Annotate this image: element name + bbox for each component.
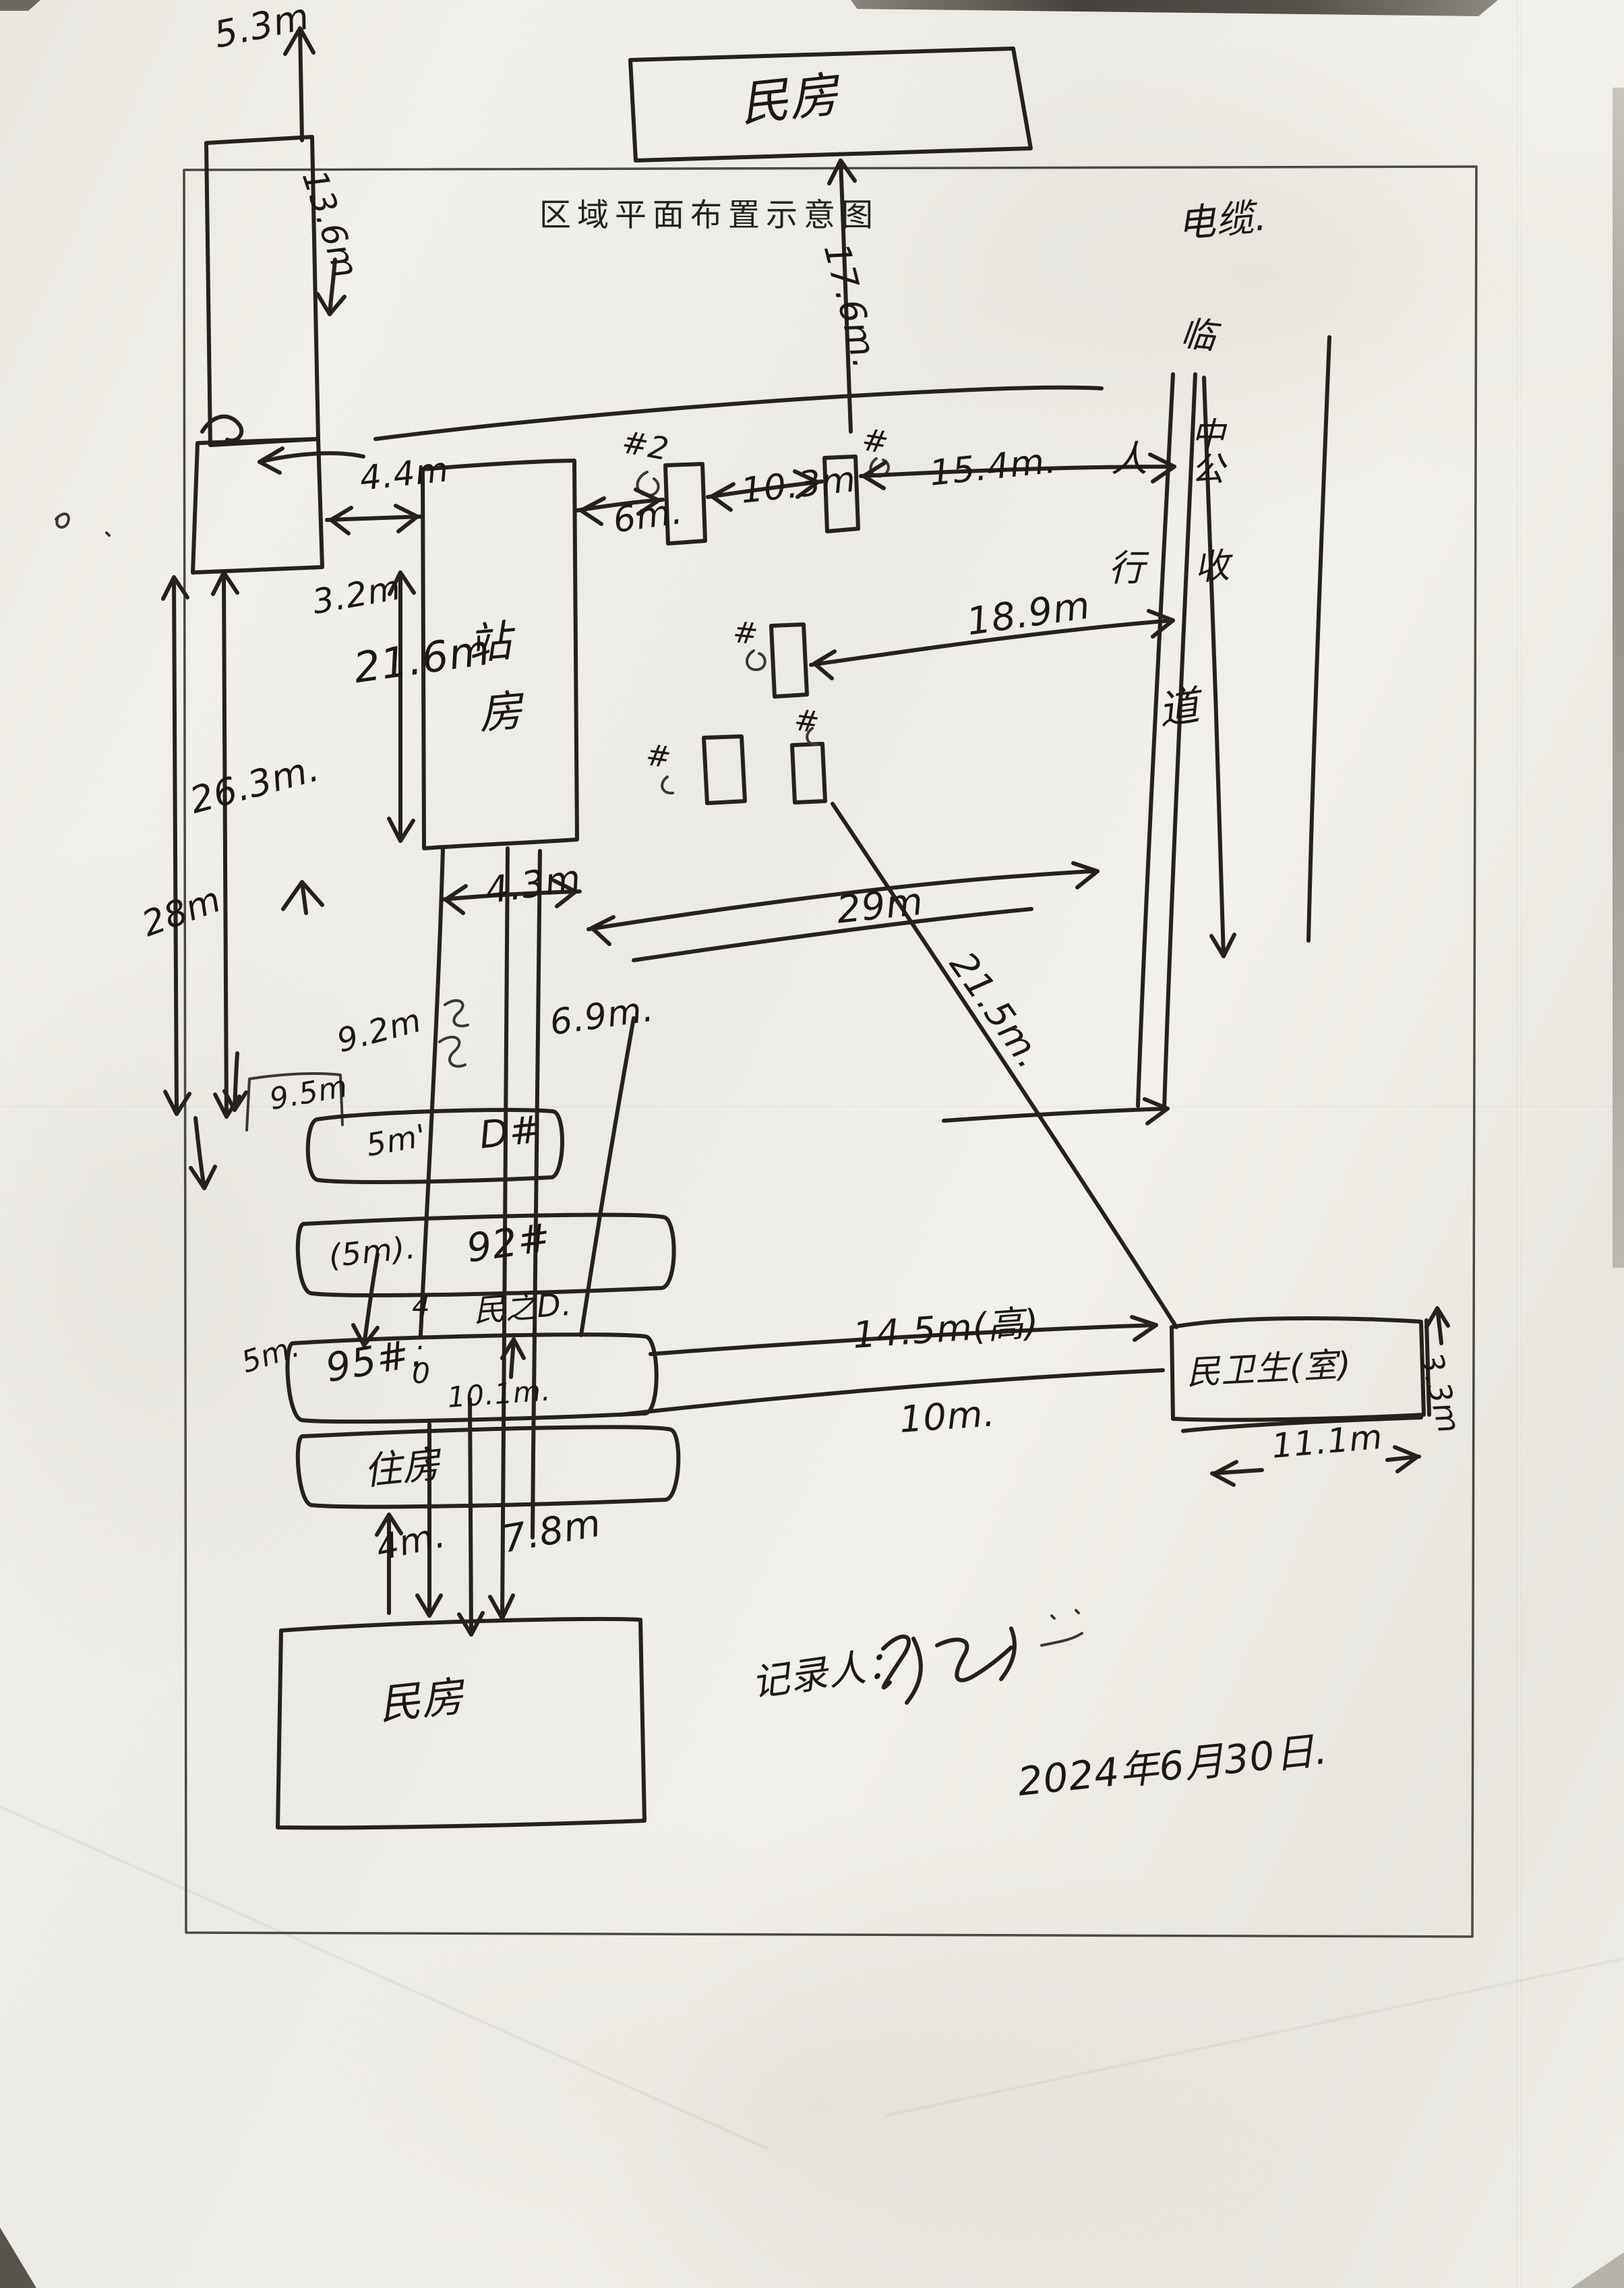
row-d-tag: D# — [477, 1107, 543, 1157]
sketch-lines — [0, 0, 1624, 2288]
pole-tag: # — [731, 615, 760, 652]
measurement-10m: 10m. — [898, 1392, 997, 1441]
label-station-house-2: 房 — [476, 676, 525, 741]
label-sidewalk-3: 道 — [1154, 673, 1203, 737]
signature-scribble — [883, 1610, 1082, 1703]
label-bottom-house: 民房 — [375, 1662, 467, 1732]
label-clinic: 民卫生(室) — [1185, 1337, 1352, 1395]
pole-tag: # — [792, 703, 822, 740]
label-column-note-1: 临 — [1178, 305, 1220, 359]
label-column-note-2: 中公 — [1181, 417, 1230, 486]
pole-18-9 — [747, 611, 1173, 697]
row-boxes — [278, 1110, 678, 1827]
label-sidewalk-2: 行 — [1108, 538, 1145, 591]
long-arrows — [589, 804, 1176, 1327]
top-left-structure — [193, 28, 363, 573]
measurement-29m: 29m — [835, 880, 926, 933]
page-title: 区域平面布置示意图 — [539, 189, 879, 235]
label-column-note-3: 收 — [1193, 537, 1232, 590]
label-top-house: 民房 — [736, 55, 841, 136]
left-dimension-lines — [56, 514, 239, 1188]
pole-tag: # — [644, 738, 674, 775]
upper-boundary-line — [375, 388, 1102, 439]
label-housing-row: 住房 — [361, 1434, 443, 1496]
label-sidewalk-1: 人 — [1111, 429, 1148, 482]
lower-poles — [662, 728, 825, 803]
note-mid: 民之D. — [472, 1280, 573, 1331]
label-cable: 电缆. — [1175, 186, 1269, 248]
